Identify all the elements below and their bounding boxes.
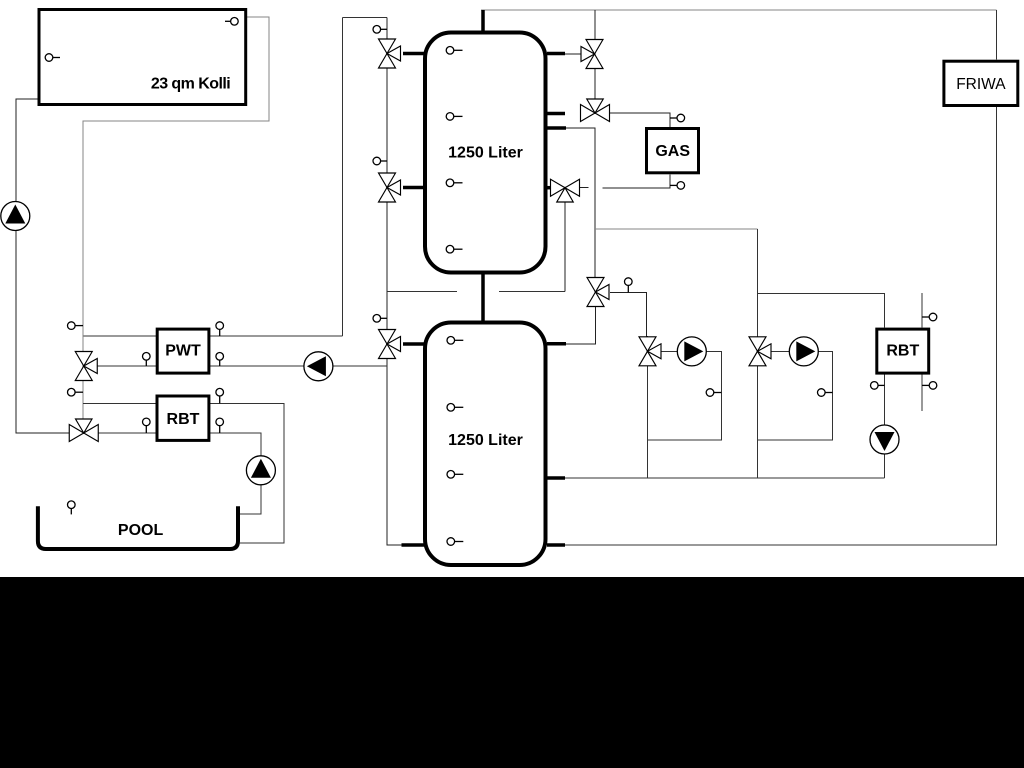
- svg-text:GAS: GAS: [655, 143, 690, 160]
- svg-text:23 qm Kolli: 23 qm Kolli: [151, 76, 230, 93]
- svg-text:1250 Liter: 1250 Liter: [448, 145, 523, 162]
- svg-text:PWT: PWT: [165, 343, 201, 360]
- svg-text:1250 Liter: 1250 Liter: [448, 432, 523, 449]
- svg-text:POOL: POOL: [118, 522, 164, 539]
- svg-text:FRIWA: FRIWA: [956, 76, 1006, 93]
- svg-text:RBT: RBT: [167, 411, 200, 428]
- svg-text:RBT: RBT: [886, 343, 919, 360]
